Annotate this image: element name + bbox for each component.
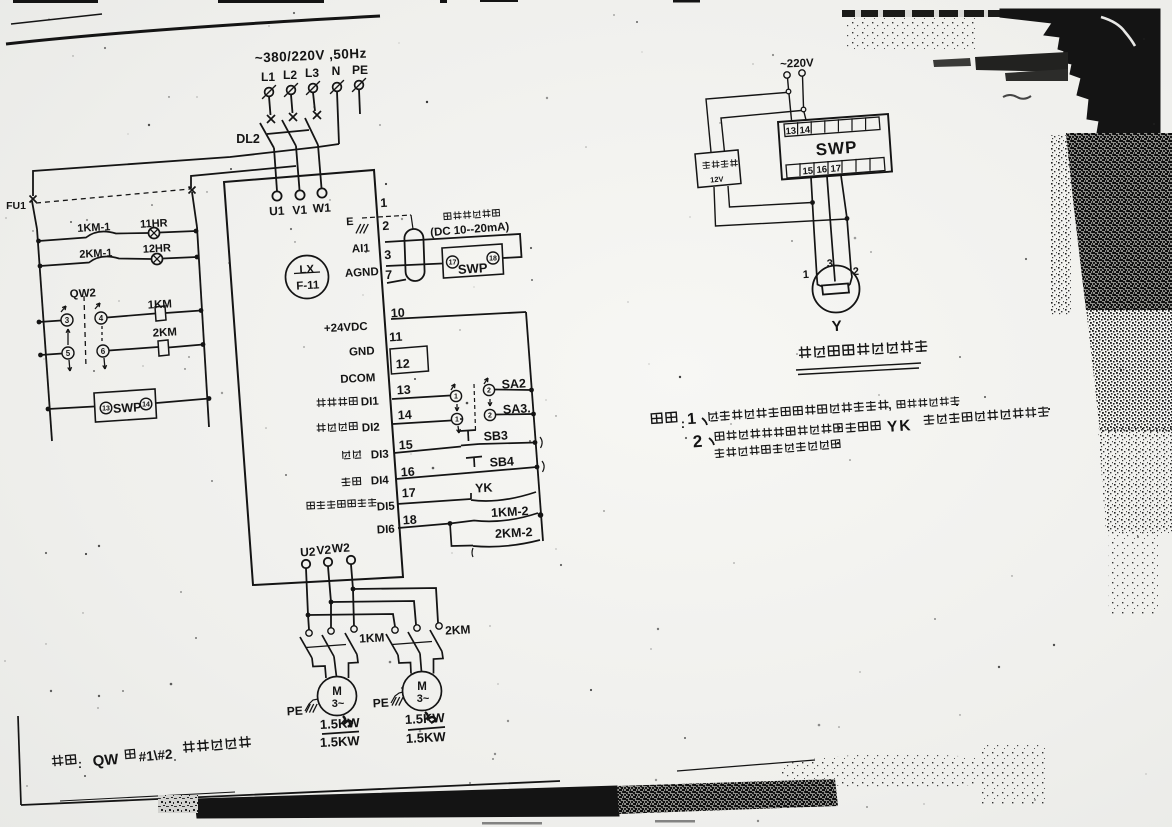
svg-text:15: 15 bbox=[802, 166, 814, 178]
svg-text:2: 2 bbox=[488, 413, 492, 420]
svg-text:QW2: QW2 bbox=[69, 287, 96, 300]
svg-text:2: 2 bbox=[692, 432, 703, 452]
svg-text:15: 15 bbox=[398, 438, 413, 453]
svg-text:.: . bbox=[836, 432, 840, 447]
svg-text:DL2: DL2 bbox=[236, 132, 260, 146]
svg-text:1.5KW: 1.5KW bbox=[320, 715, 361, 732]
svg-text:17: 17 bbox=[449, 260, 457, 267]
svg-text:U1: U1 bbox=[269, 204, 285, 219]
svg-text:7: 7 bbox=[385, 268, 393, 282]
svg-text:17: 17 bbox=[830, 163, 841, 175]
svg-text:LX: LX bbox=[299, 264, 315, 277]
svg-text:SB3: SB3 bbox=[483, 428, 508, 443]
svg-text:13: 13 bbox=[102, 406, 110, 413]
svg-text:Y: Y bbox=[831, 318, 842, 336]
svg-text:3: 3 bbox=[384, 248, 392, 262]
svg-text:.: . bbox=[1047, 398, 1051, 413]
svg-text:DI4: DI4 bbox=[371, 475, 390, 488]
svg-text:6: 6 bbox=[101, 347, 106, 356]
svg-text:YK: YK bbox=[475, 481, 493, 496]
svg-text:2KM-2: 2KM-2 bbox=[495, 525, 533, 541]
svg-text:13: 13 bbox=[785, 126, 796, 138]
svg-text:1: 1 bbox=[455, 417, 459, 424]
svg-text:DCOM: DCOM bbox=[340, 372, 376, 386]
svg-text::: : bbox=[78, 757, 82, 771]
svg-text:1.5KW: 1.5KW bbox=[406, 729, 447, 746]
svg-text:3~: 3~ bbox=[332, 698, 345, 710]
svg-text:12: 12 bbox=[395, 357, 410, 372]
svg-text:2: 2 bbox=[382, 219, 390, 233]
svg-text:M: M bbox=[417, 681, 427, 693]
svg-text:L1: L1 bbox=[261, 70, 275, 84]
svg-text:3: 3 bbox=[826, 258, 833, 270]
svg-text:E: E bbox=[346, 216, 354, 228]
svg-text:PE: PE bbox=[372, 696, 389, 711]
svg-text:AGND: AGND bbox=[345, 266, 379, 280]
svg-text:V1: V1 bbox=[292, 203, 308, 218]
svg-text:4: 4 bbox=[99, 314, 104, 323]
svg-text:1: 1 bbox=[802, 269, 809, 281]
svg-text:14: 14 bbox=[142, 402, 150, 409]
svg-text:YK: YK bbox=[887, 417, 913, 436]
svg-text:.: . bbox=[955, 394, 959, 409]
svg-text:14: 14 bbox=[397, 408, 412, 423]
svg-text:11: 11 bbox=[389, 330, 403, 345]
svg-text:GND: GND bbox=[349, 345, 375, 358]
svg-text:~220V: ~220V bbox=[780, 57, 814, 70]
svg-text:V2: V2 bbox=[316, 543, 332, 558]
svg-text:DI3: DI3 bbox=[371, 449, 390, 462]
svg-text:AI1: AI1 bbox=[352, 243, 371, 256]
svg-text:1.5KW: 1.5KW bbox=[320, 733, 361, 750]
svg-text:SWP: SWP bbox=[815, 138, 858, 160]
svg-text:1: 1 bbox=[454, 394, 458, 401]
svg-text:2KM: 2KM bbox=[152, 326, 177, 339]
svg-text:DI5: DI5 bbox=[377, 501, 396, 514]
svg-text:F-11: F-11 bbox=[296, 279, 320, 292]
svg-text:PE: PE bbox=[286, 704, 303, 719]
svg-text:16: 16 bbox=[816, 164, 827, 176]
svg-text:+24VDC: +24VDC bbox=[324, 321, 368, 335]
svg-text:5: 5 bbox=[66, 349, 71, 358]
svg-text::: : bbox=[681, 417, 685, 431]
svg-text:L2: L2 bbox=[283, 68, 297, 82]
svg-text:18: 18 bbox=[489, 256, 497, 263]
svg-text:2: 2 bbox=[487, 388, 491, 395]
svg-text:L3: L3 bbox=[305, 66, 319, 80]
svg-text:FU1: FU1 bbox=[6, 200, 26, 212]
svg-text:SWP: SWP bbox=[457, 260, 488, 277]
svg-text:18: 18 bbox=[402, 513, 417, 528]
svg-text:13: 13 bbox=[396, 383, 411, 398]
svg-text:QW: QW bbox=[92, 751, 120, 770]
svg-text:3: 3 bbox=[65, 316, 70, 325]
svg-text:3~: 3~ bbox=[417, 693, 430, 705]
svg-text:1KM: 1KM bbox=[147, 298, 172, 311]
svg-text:W2: W2 bbox=[331, 541, 350, 556]
svg-text:N: N bbox=[332, 64, 341, 78]
svg-text:SWP: SWP bbox=[113, 400, 142, 416]
svg-text:W1: W1 bbox=[312, 201, 331, 216]
svg-text:DI1: DI1 bbox=[361, 396, 380, 409]
svg-text:11HR: 11HR bbox=[140, 217, 168, 230]
svg-text:1KM: 1KM bbox=[359, 630, 385, 645]
svg-text:SB4: SB4 bbox=[489, 454, 514, 469]
svg-text:DI6: DI6 bbox=[377, 524, 396, 537]
svg-text:1: 1 bbox=[380, 196, 388, 210]
svg-text:12V: 12V bbox=[710, 175, 724, 185]
svg-text:2KM: 2KM bbox=[445, 622, 471, 637]
svg-text:M: M bbox=[332, 686, 342, 698]
svg-text:1: 1 bbox=[687, 411, 697, 429]
svg-text:U2: U2 bbox=[300, 545, 316, 560]
svg-text:#1\#2: #1\#2 bbox=[138, 747, 173, 765]
svg-text:17: 17 bbox=[401, 486, 416, 501]
svg-text:14: 14 bbox=[799, 125, 811, 137]
svg-text:PE: PE bbox=[352, 63, 368, 77]
svg-text:DI2: DI2 bbox=[362, 422, 381, 435]
